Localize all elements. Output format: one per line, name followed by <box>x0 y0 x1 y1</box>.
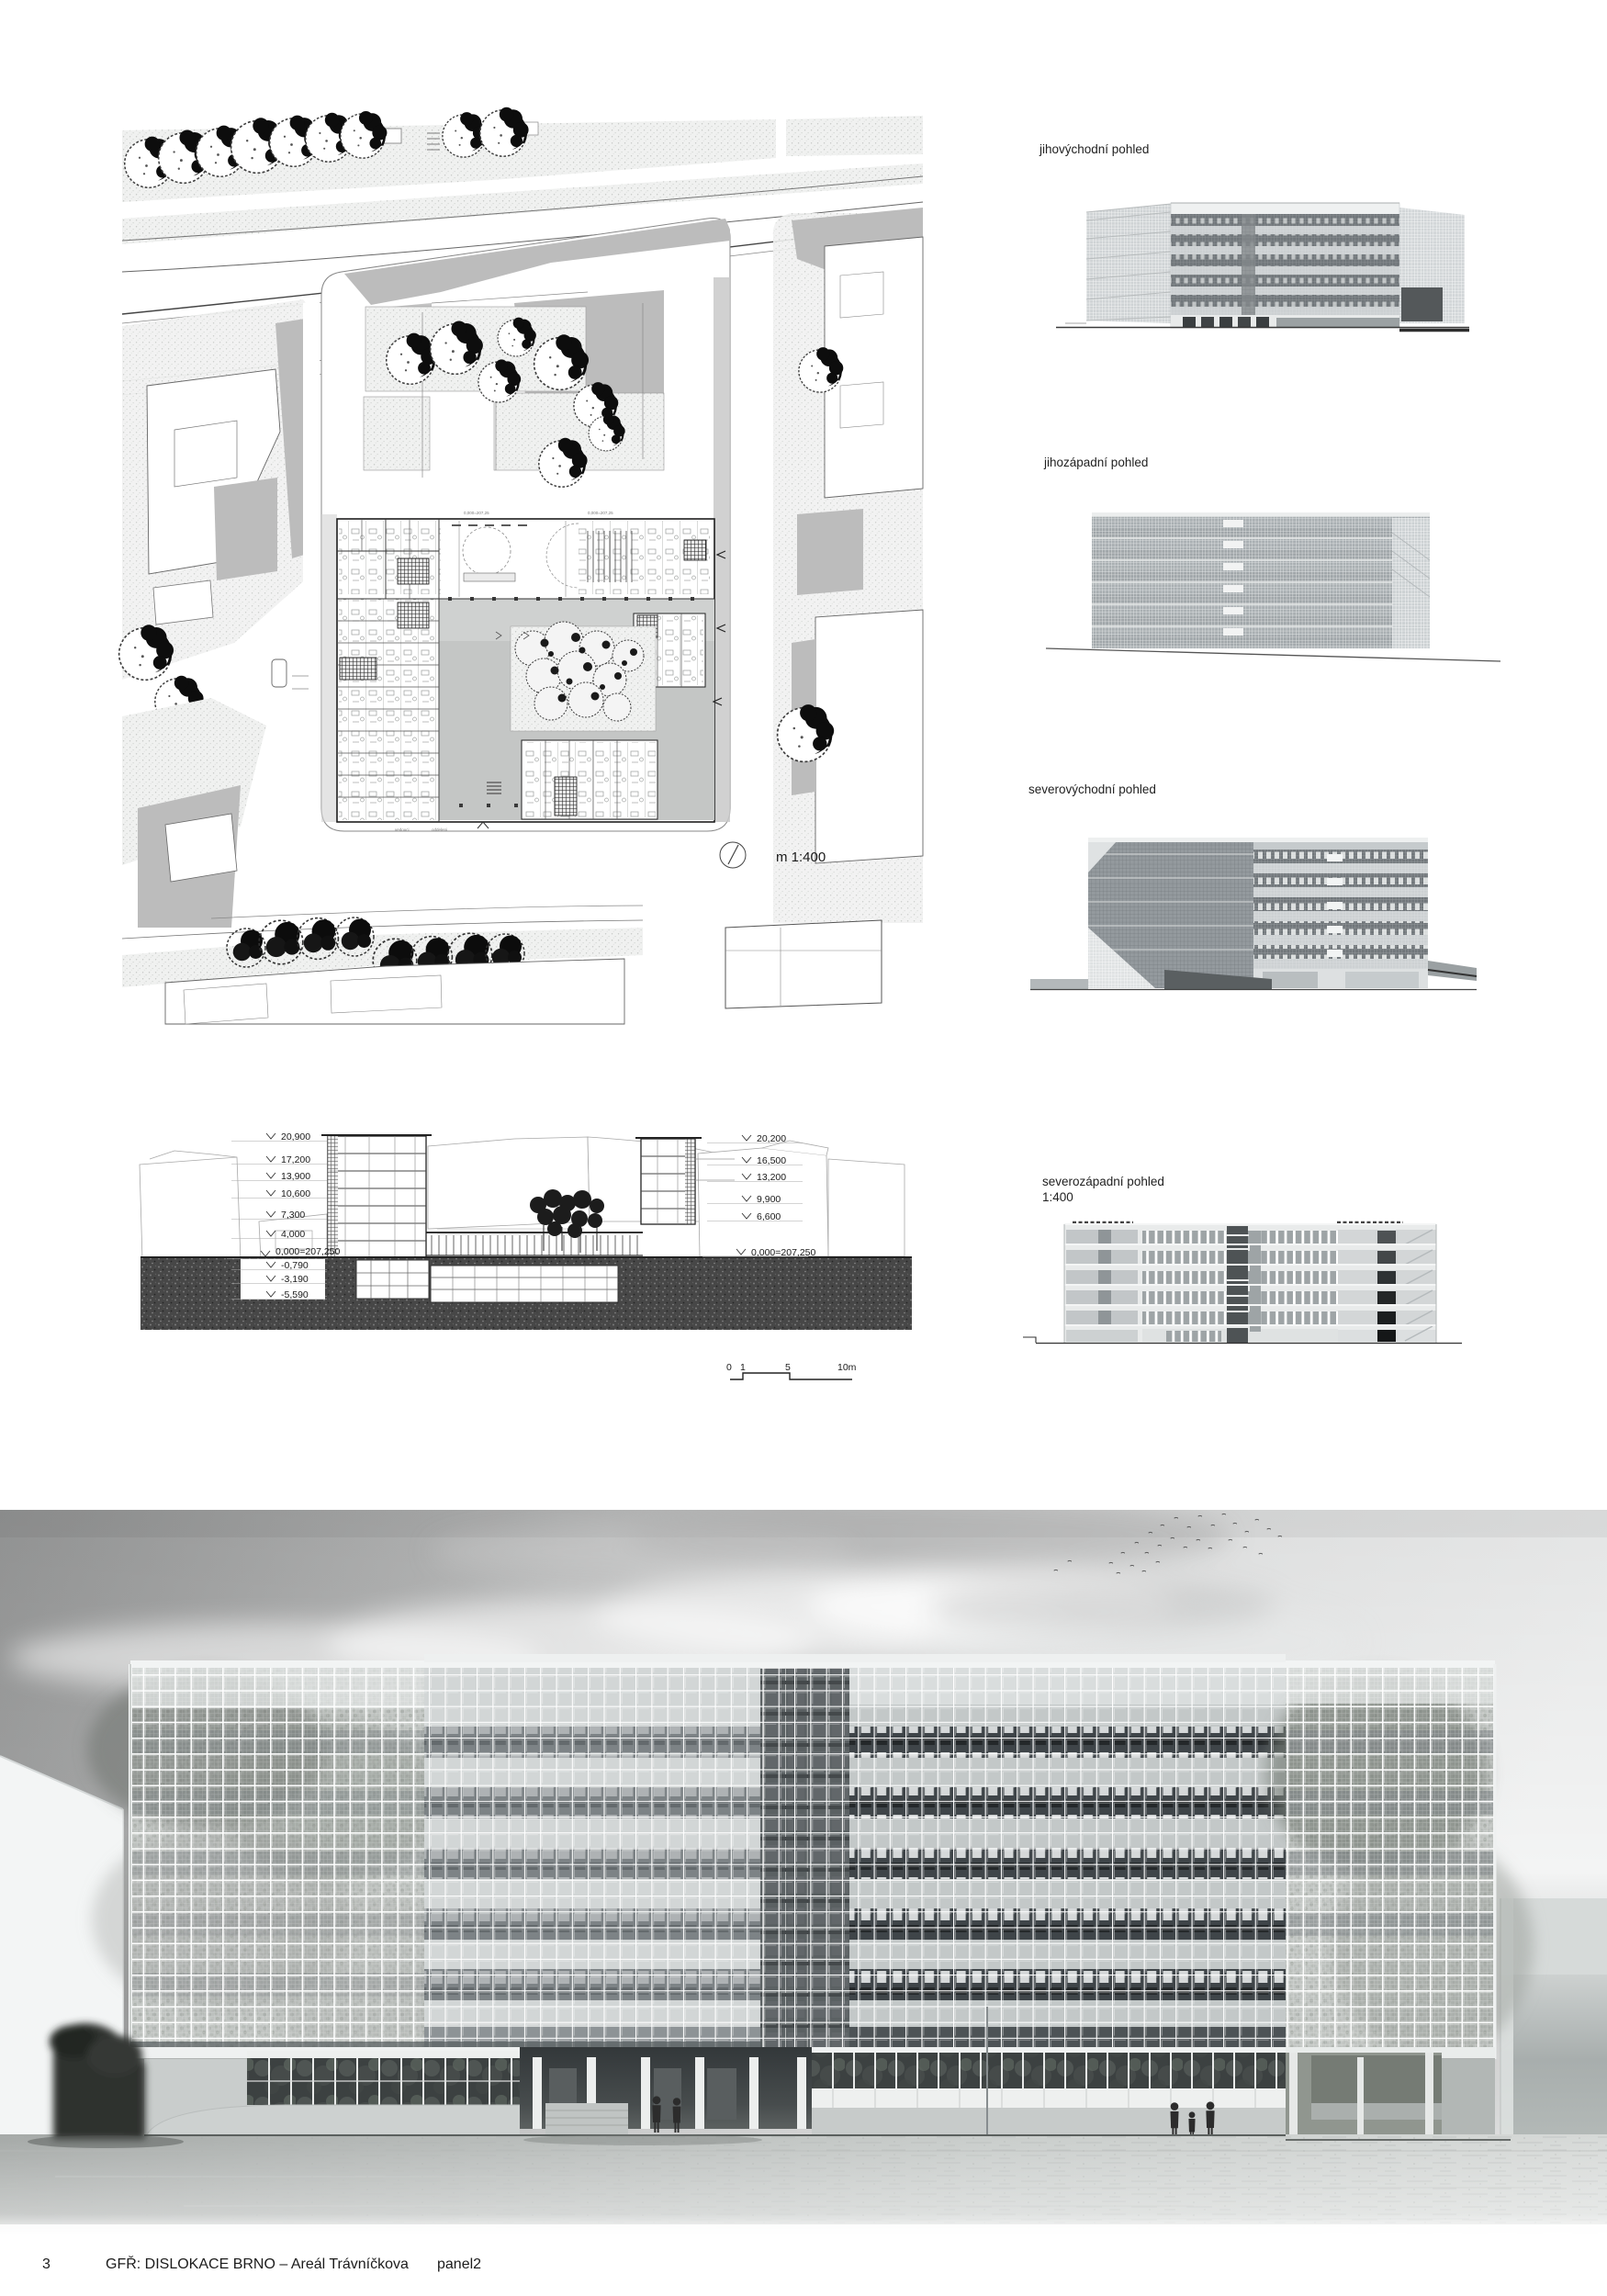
svg-text:panel2: panel2 <box>437 2257 481 2272</box>
svg-text:0,000=207,25: 0,000=207,25 <box>464 511 489 515</box>
svg-text:severovýchodní pohled: severovýchodní pohled <box>1028 782 1156 796</box>
svg-text:0: 0 <box>726 1362 732 1373</box>
svg-text:jihozápadní pohled: jihozápadní pohled <box>1043 456 1148 469</box>
svg-text:5: 5 <box>785 1362 791 1373</box>
svg-text:m 1:400: m 1:400 <box>776 850 826 865</box>
svg-text:vedouci: vedouci <box>395 827 410 832</box>
svg-text:10m: 10m <box>837 1362 857 1373</box>
svg-text:jihovýchodní pohled: jihovýchodní pohled <box>1039 142 1149 156</box>
svg-text:0,000=207,25: 0,000=207,25 <box>588 511 613 515</box>
svg-text:3: 3 <box>42 2257 51 2272</box>
svg-text:1: 1 <box>740 1362 746 1373</box>
svg-text:0,000=207,250: 0,000=207,250 <box>275 1246 341 1257</box>
svg-text:oddeleni: oddeleni <box>432 827 447 832</box>
svg-text:severozápadní pohled: severozápadní pohled <box>1042 1175 1164 1188</box>
svg-text:GFŘ: DISLOKACE BRNO – Areál Tr: GFŘ: DISLOKACE BRNO – Areál Trávníčkova <box>106 2255 409 2272</box>
svg-text:1:400: 1:400 <box>1042 1190 1073 1204</box>
